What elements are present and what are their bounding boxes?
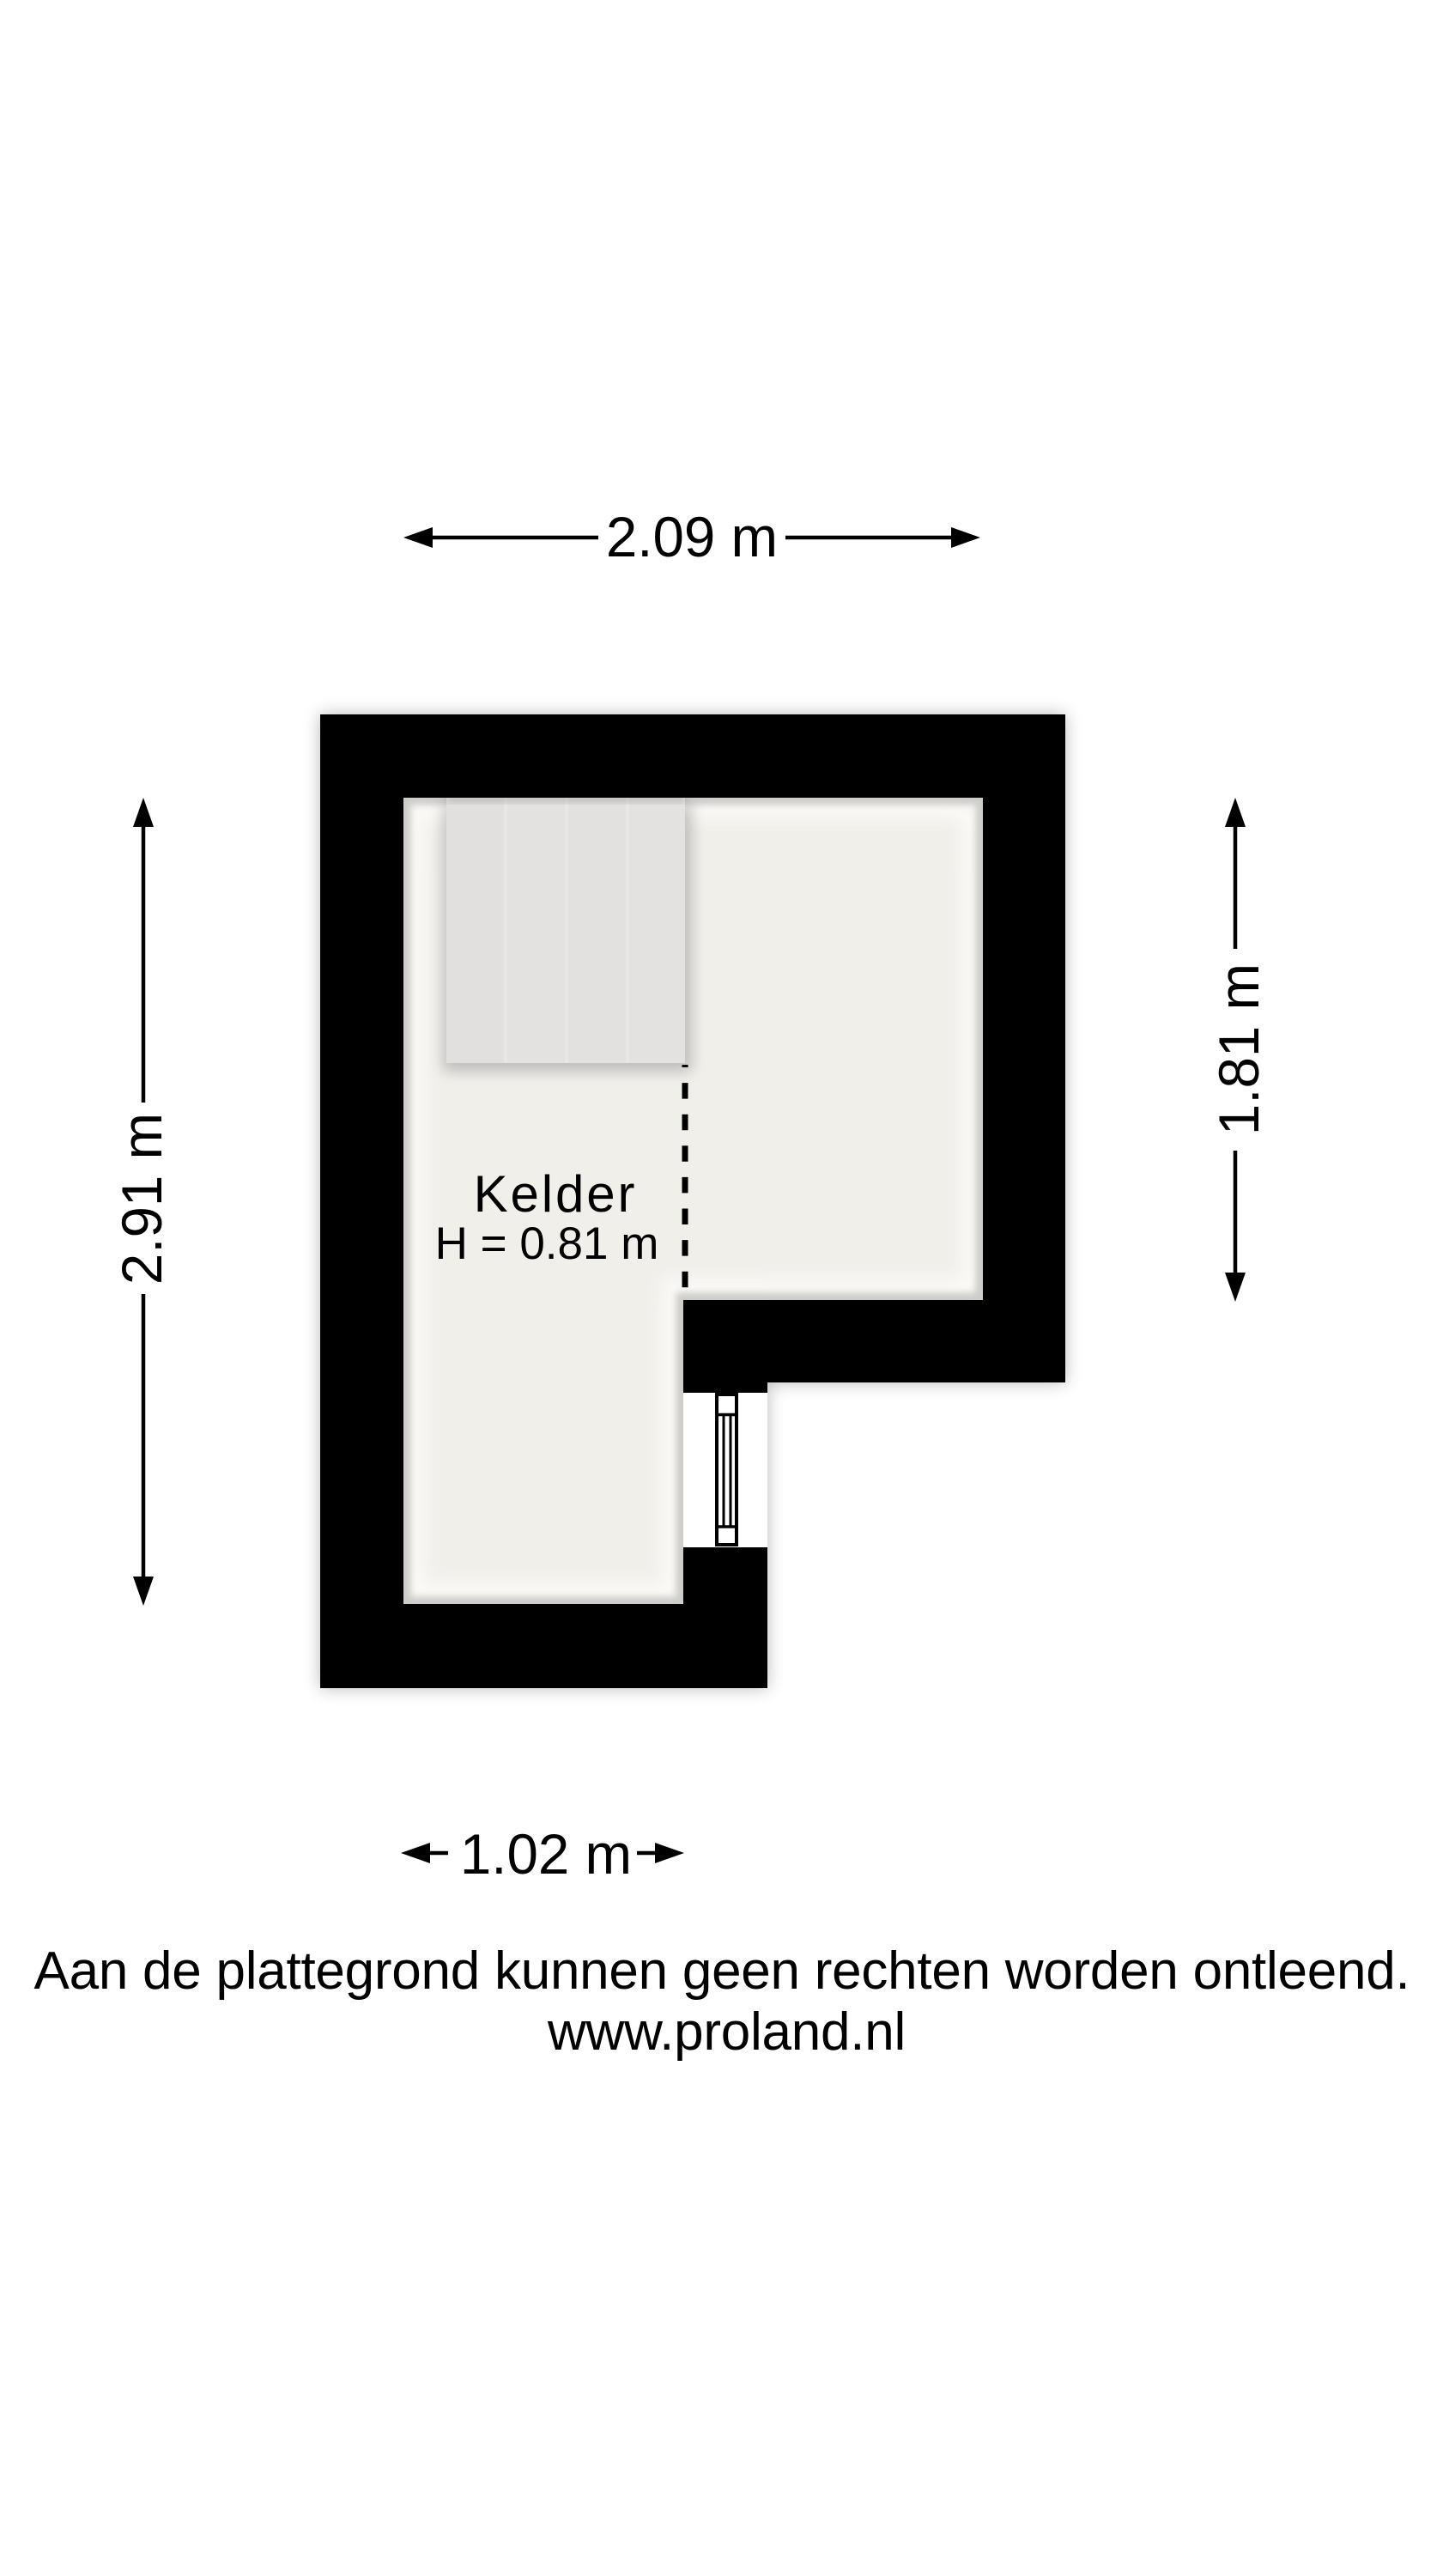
- svg-text:Aan de plattegrond kunnen geen: Aan de plattegrond kunnen geen rechten w…: [34, 1941, 1410, 2001]
- svg-text:1.02 m: 1.02 m: [460, 1823, 632, 1886]
- svg-text:Kelder: Kelder: [474, 1165, 638, 1223]
- svg-text:1.81 m: 1.81 m: [1208, 963, 1270, 1135]
- svg-text:2.91 m: 2.91 m: [111, 1113, 173, 1285]
- svg-text:2.09 m: 2.09 m: [606, 506, 778, 568]
- svg-text:H = 0.81 m: H = 0.81 m: [435, 1218, 659, 1269]
- svg-text:www.proland.nl: www.proland.nl: [547, 2002, 906, 2062]
